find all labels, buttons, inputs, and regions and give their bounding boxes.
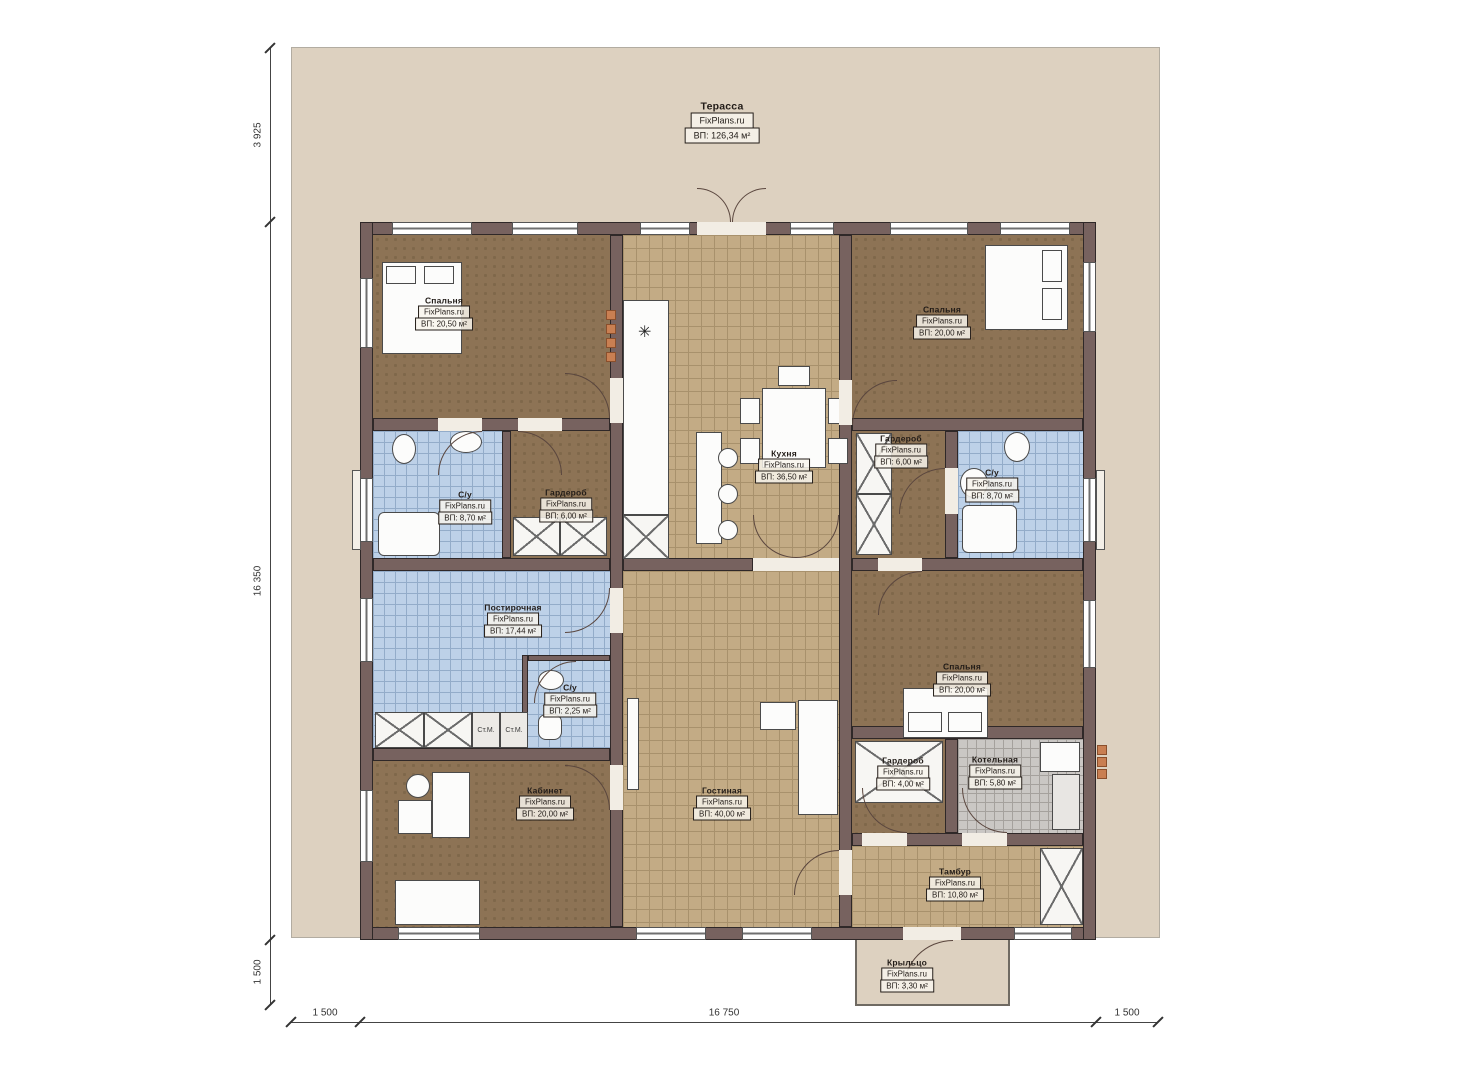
room-label-laundry: Постирочная FixPlans.ru ВП: 17,44 м²	[484, 603, 542, 638]
office-chair	[406, 774, 430, 798]
window	[398, 927, 480, 940]
sofa	[395, 880, 480, 925]
room-label-kitchen: Кухня FixPlans.ru ВП: 36,50 м²	[755, 449, 813, 484]
door-opening-porch	[903, 927, 961, 940]
window	[360, 278, 373, 348]
chair	[778, 366, 810, 386]
fridge	[623, 515, 669, 559]
chair	[828, 438, 848, 464]
room-label-boiler: Котельная FixPlans.ru ВП: 5,80 м²	[968, 755, 1022, 790]
dimension-label: 1 500	[253, 959, 264, 984]
door-opening	[610, 765, 623, 810]
wall-wardrobe-boiler	[945, 739, 958, 833]
door-opening	[962, 833, 1007, 846]
dimension-label: 16 750	[709, 1008, 740, 1019]
pillow	[1042, 288, 1062, 320]
room-label-bedroom-tr: Спальня FixPlans.ru ВП: 20,00 м²	[913, 305, 971, 340]
boiler-counter	[1052, 774, 1080, 830]
sofa	[798, 700, 838, 815]
room-label-office: Кабинет FixPlans.ru ВП: 20,00 м²	[516, 786, 574, 821]
wardrobe-cabinet	[513, 517, 560, 556]
room-label-vestibule: Тамбур FixPlans.ru ВП: 10,80 м²	[926, 867, 984, 902]
door-opening	[518, 418, 562, 431]
room-label-bedroom-tl: Спальня FixPlans.ru ВП: 20,50 м²	[415, 296, 473, 331]
washing-machine: Ст.М.	[500, 712, 528, 748]
room-label-wc-small: С/у FixPlans.ru ВП: 2,25 м²	[543, 683, 597, 718]
door-opening-living	[753, 558, 839, 571]
laundry-cabinet	[375, 712, 424, 748]
room-label-wardrobe-right: Гардероб FixPlans.ru ВП: 6,00 м²	[874, 434, 928, 469]
toilet	[392, 434, 416, 464]
pillow	[386, 266, 416, 284]
wall-left-h3	[373, 748, 610, 761]
shower	[962, 505, 1017, 553]
tv-stand	[627, 698, 639, 790]
wall-kitchen-living	[623, 558, 753, 571]
boiler-unit	[1040, 742, 1080, 772]
room-label-living: Гостиная FixPlans.ru ВП: 40,00 м²	[693, 786, 751, 821]
radiator-segment	[606, 338, 616, 348]
door-opening	[862, 833, 907, 846]
shower	[378, 512, 440, 556]
window	[1083, 478, 1096, 542]
door-opening	[839, 380, 852, 425]
desk	[432, 772, 470, 838]
window	[742, 927, 812, 940]
wall-left-h2	[373, 558, 610, 571]
room-label-bathroom-right: С/у FixPlans.ru ВП: 8,70 м²	[965, 468, 1019, 503]
window	[890, 222, 968, 235]
wall-right-column	[839, 235, 852, 927]
stove-icon: ✳	[638, 322, 651, 342]
radiator-segment	[1097, 745, 1107, 755]
door-opening	[610, 378, 623, 423]
wall-small-wc-top	[528, 655, 610, 661]
room-label-wardrobe-small: Гардероб FixPlans.ru ВП: 4,00 м²	[876, 756, 930, 791]
window	[512, 222, 578, 235]
window	[1083, 600, 1096, 668]
window-sill	[1096, 470, 1105, 550]
window	[392, 222, 472, 235]
door-opening	[610, 588, 623, 633]
dimension-label: 1 500	[312, 1008, 337, 1019]
window	[640, 222, 690, 235]
radiator-segment	[1097, 769, 1107, 779]
room-label-bedroom-middle: Спальня FixPlans.ru ВП: 20,00 м²	[933, 662, 991, 697]
window	[360, 790, 373, 862]
door-opening	[839, 850, 852, 895]
room-label-wardrobe-left: Гардероб FixPlans.ru ВП: 6,00 м²	[539, 488, 593, 523]
door-opening-terrace	[697, 222, 766, 235]
radiator-segment	[606, 310, 616, 320]
wall-bath-wardrobe-left	[502, 431, 511, 558]
window	[360, 478, 373, 542]
window-sill	[352, 470, 361, 550]
dimension-line-bottom	[291, 1022, 1158, 1023]
radiator-segment	[606, 352, 616, 362]
window	[1014, 927, 1072, 940]
radiator-segment	[606, 324, 616, 334]
laundry-cabinet	[424, 712, 472, 748]
radiator-segment	[1097, 757, 1107, 767]
room-label-terrace: Терасса FixPlans.ru ВП: 126,34 м²	[685, 101, 760, 144]
door-opening	[945, 468, 958, 514]
chair	[740, 398, 760, 424]
sink	[538, 714, 562, 740]
wardrobe-cabinet	[560, 517, 607, 556]
dimension-label: 3 925	[253, 122, 264, 147]
desk-return	[398, 800, 432, 834]
bar-stool	[718, 448, 738, 468]
wardrobe-cabinet	[856, 494, 892, 555]
bar-stool	[718, 484, 738, 504]
window	[1083, 262, 1096, 332]
closet	[1040, 848, 1083, 925]
dimension-label: 1 500	[1114, 1008, 1139, 1019]
window	[790, 222, 834, 235]
armchair	[760, 702, 796, 730]
bar-stool	[718, 520, 738, 540]
dimension-line-left	[270, 48, 271, 1005]
washing-machine: Ст.М.	[472, 712, 500, 748]
pillow	[908, 712, 942, 732]
washer-label: Ст.М.	[477, 727, 494, 734]
washer-label: Ст.М.	[505, 727, 522, 734]
pillow	[948, 712, 982, 732]
window	[1000, 222, 1070, 235]
room-label-porch: Крыльцо FixPlans.ru ВП: 3,30 м²	[880, 958, 934, 993]
toilet	[1004, 432, 1030, 462]
door-opening	[438, 418, 482, 431]
window	[636, 927, 706, 940]
door-opening	[878, 558, 922, 571]
room-label-bathroom-left: С/у FixPlans.ru ВП: 8,70 м²	[438, 490, 492, 525]
pillow	[1042, 250, 1062, 282]
window	[360, 598, 373, 662]
pillow	[424, 266, 454, 284]
wall-left-h1	[373, 418, 610, 431]
dimension-label: 16 350	[253, 566, 264, 597]
floor-plan-canvas: ✳ Ст.М. Ст.М. Терасс	[0, 0, 1473, 1080]
